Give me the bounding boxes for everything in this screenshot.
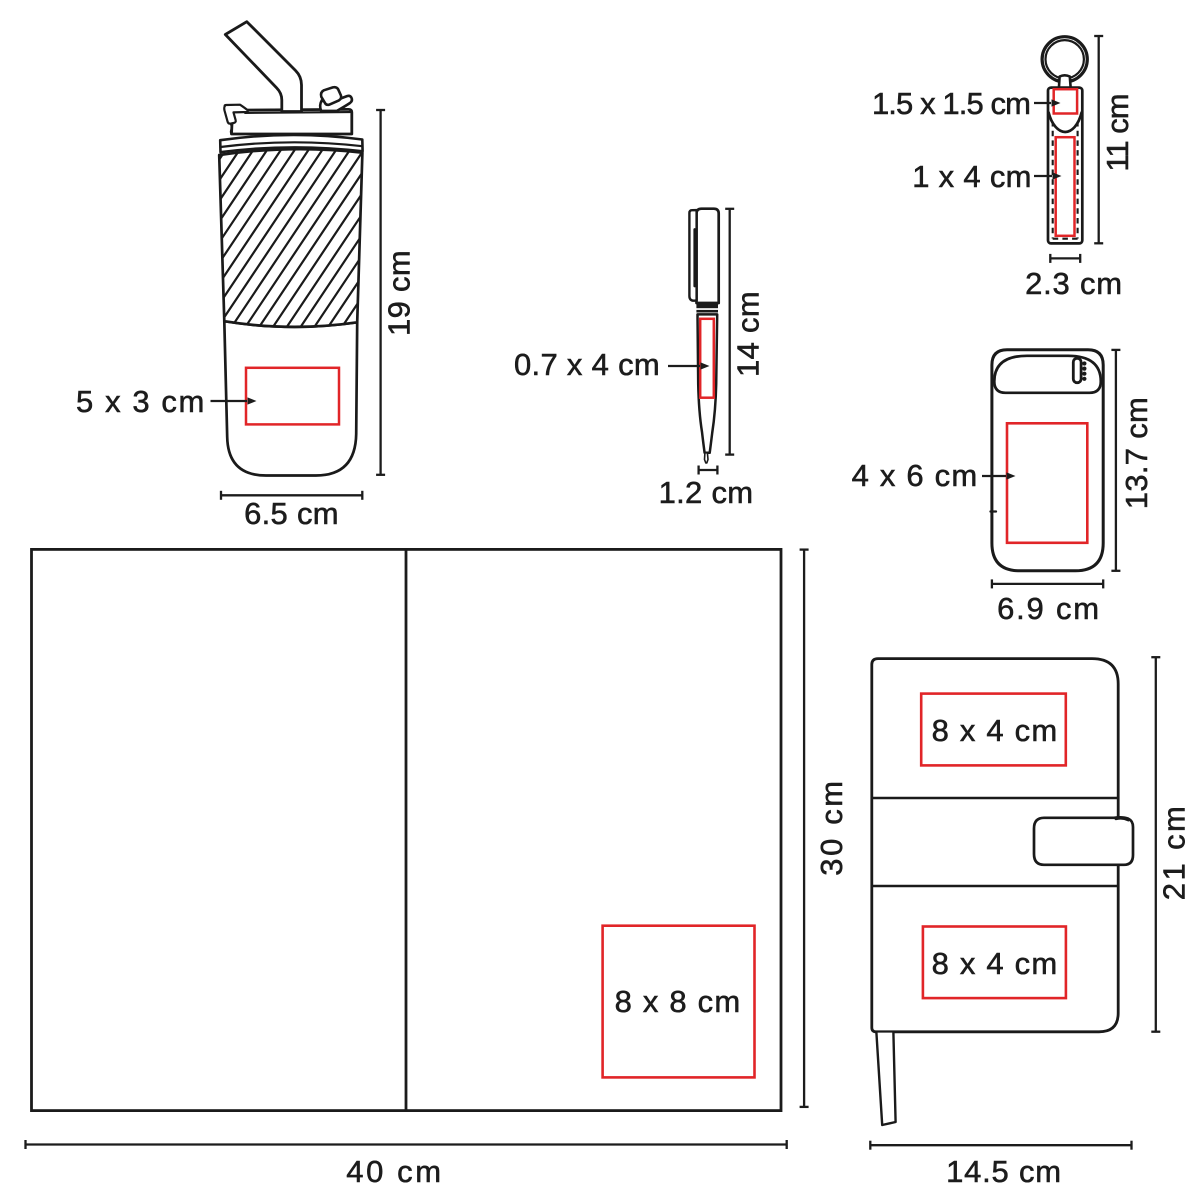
svg-text:1.5 x 1.5 cm: 1.5 x 1.5 cm [872,86,1030,121]
svg-text:19 cm: 19 cm [382,250,417,336]
svg-text:30 cm: 30 cm [814,778,849,875]
svg-text:8 x 4 cm: 8 x 4 cm [932,713,1059,748]
svg-text:21 cm: 21 cm [1157,804,1192,900]
svg-text:14.5 cm: 14.5 cm [946,1154,1062,1189]
svg-text:14 cm: 14 cm [731,291,766,377]
svg-text:8 x 4 cm: 8 x 4 cm [932,946,1059,981]
svg-text:5 x 3 cm: 5 x 3 cm [76,384,206,419]
svg-text:6.9 cm: 6.9 cm [997,591,1101,626]
svg-text:2.3 cm: 2.3 cm [1025,266,1123,301]
svg-text:1 x 4 cm: 1 x 4 cm [912,159,1032,194]
svg-text:​6.5 cm: ​6.5 cm [244,496,339,531]
svg-text:11 cm: 11 cm [1100,94,1135,171]
svg-text:13.7 cm: 13.7 cm [1119,397,1154,509]
svg-text:8 x 8 cm: 8 x 8 cm [615,984,742,1019]
svg-text:0.7 x 4 cm: 0.7 x 4 cm [514,347,660,382]
svg-text:4 x 6 cm: 4 x 6 cm [852,458,979,493]
svg-text:40 cm: 40 cm [346,1154,443,1189]
svg-text:1.2 cm: 1.2 cm [659,475,754,510]
